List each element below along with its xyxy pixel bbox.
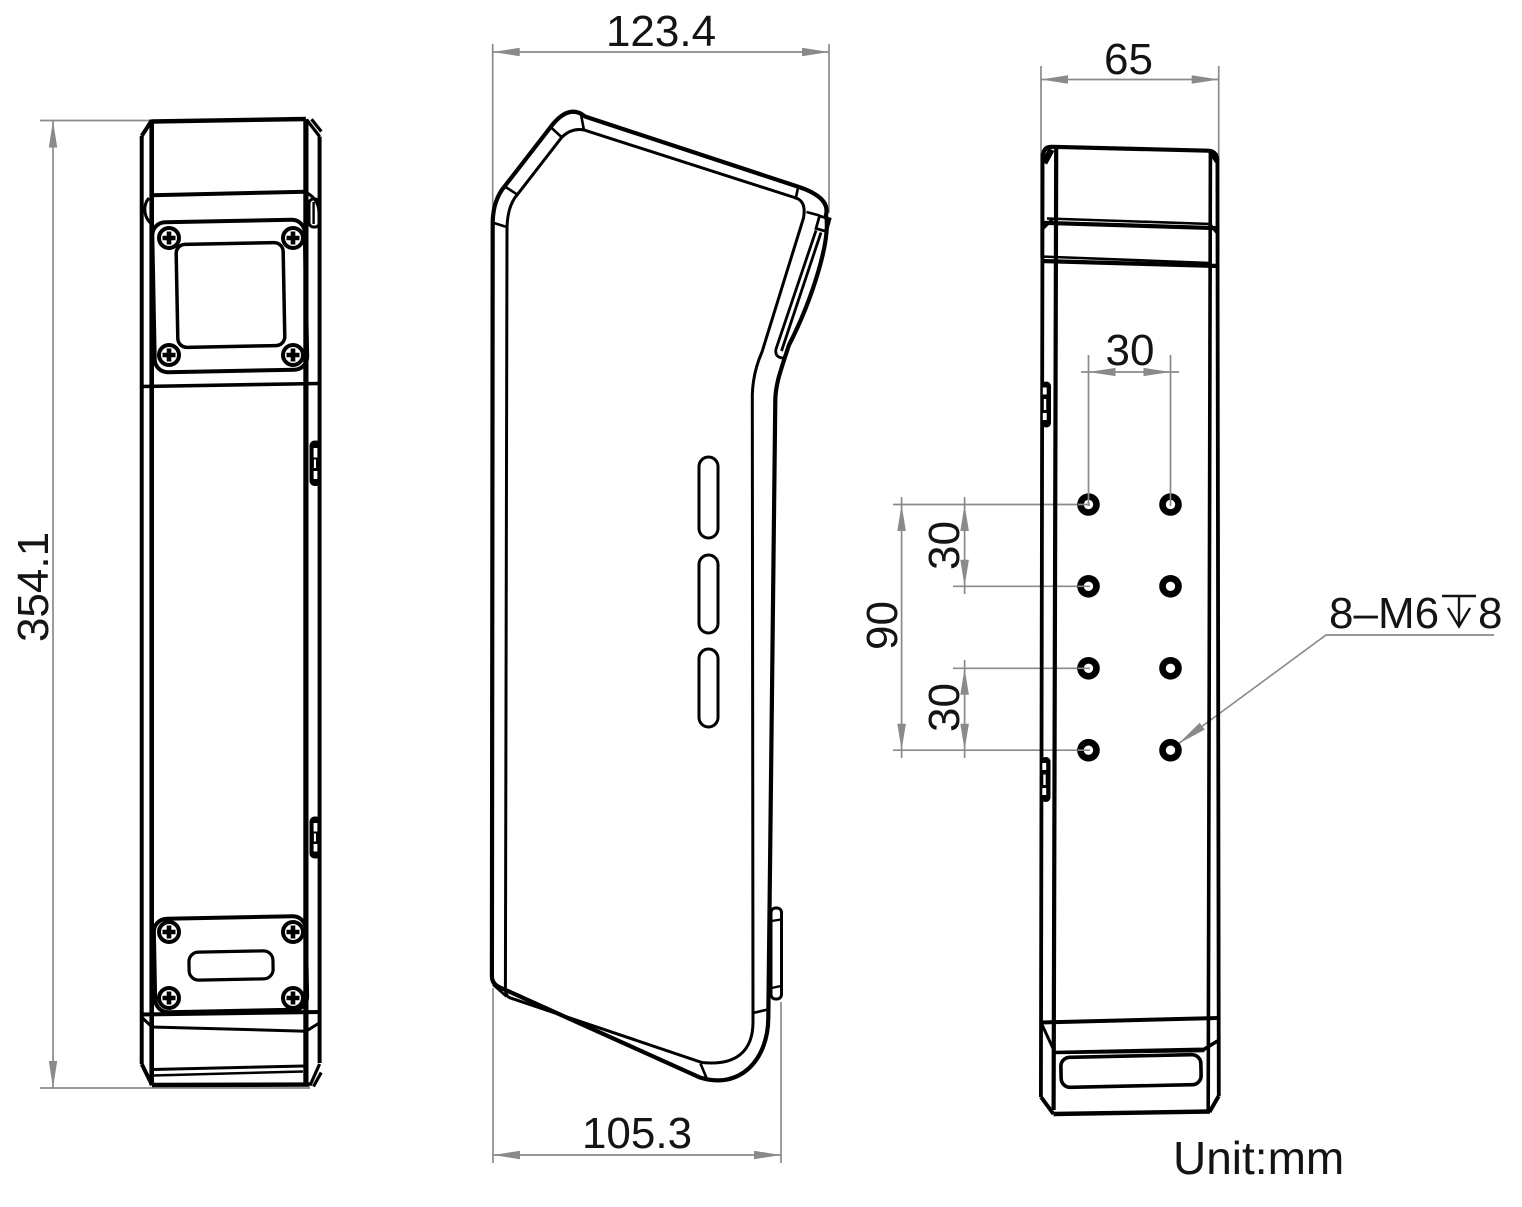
svg-text:354.1: 354.1	[9, 532, 58, 642]
svg-text:105.3: 105.3	[582, 1109, 692, 1158]
svg-text:90: 90	[858, 601, 907, 650]
svg-text:30: 30	[920, 683, 969, 732]
svg-text:Unit:mm: Unit:mm	[1173, 1132, 1344, 1184]
svg-text:123.4: 123.4	[606, 7, 716, 56]
svg-text:8–M6: 8–M6	[1329, 589, 1439, 638]
svg-text:8: 8	[1478, 589, 1502, 638]
svg-text:30: 30	[1106, 326, 1155, 375]
svg-text:65: 65	[1104, 35, 1153, 84]
svg-text:30: 30	[920, 521, 969, 570]
